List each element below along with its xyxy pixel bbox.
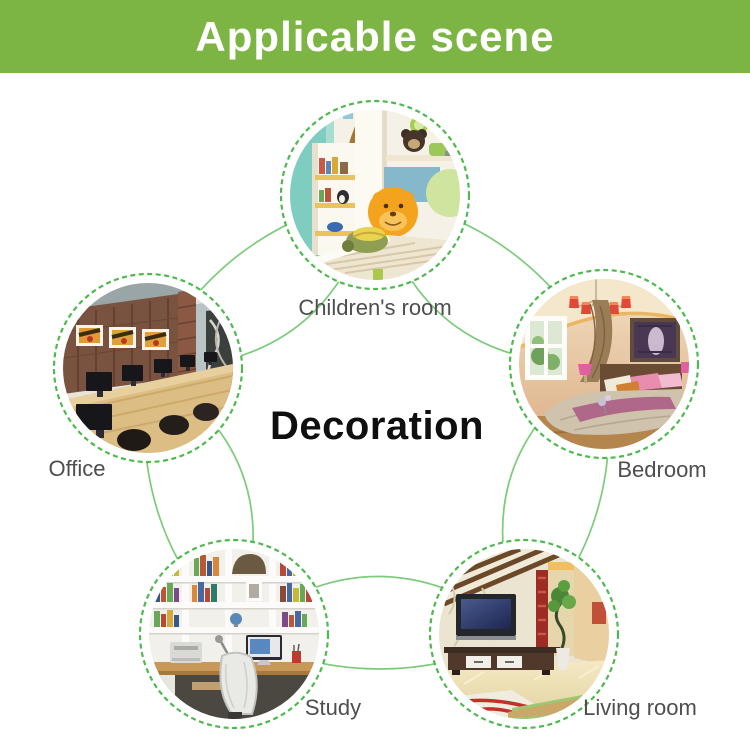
bedroom-photo	[519, 279, 689, 449]
label-office: Office	[48, 456, 105, 482]
office-photo	[63, 283, 233, 453]
label-childrens-room: Children's room	[298, 295, 451, 321]
study-photo	[149, 549, 319, 719]
header-banner: Applicable scene	[0, 0, 750, 73]
living-room-photo	[439, 549, 609, 719]
label-study: Study	[305, 695, 361, 721]
label-bedroom: Bedroom	[617, 457, 706, 483]
label-living-room: Living room	[583, 695, 697, 721]
center-label: Decoration	[270, 404, 484, 449]
header-title: Applicable scene	[195, 13, 554, 61]
